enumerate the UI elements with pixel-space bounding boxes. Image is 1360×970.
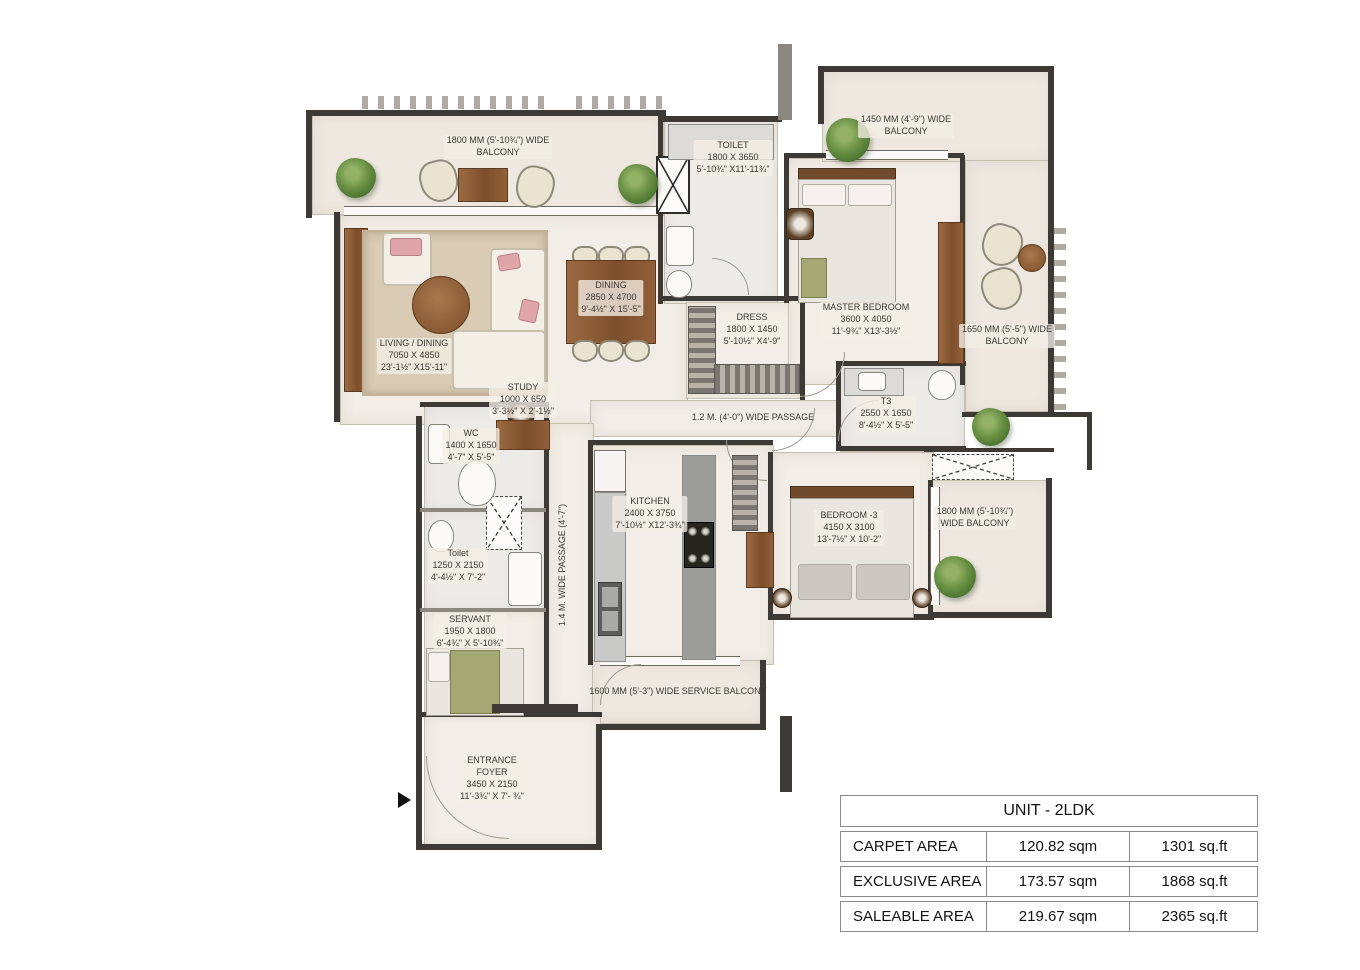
wall	[588, 440, 593, 665]
wall	[420, 608, 546, 612]
area-sqft: 2365 sq.ft	[1129, 902, 1259, 931]
wall	[818, 66, 824, 124]
window	[344, 206, 658, 216]
shoe-cabinet	[492, 704, 578, 713]
wall	[420, 508, 546, 512]
stove	[684, 522, 714, 568]
sink-fixture	[858, 372, 886, 391]
room-label-balcony-1800: 1800 MM (5'-10¾") WIDE BALCONY	[934, 506, 1016, 530]
sofa-section	[452, 330, 546, 390]
sink-fixture	[666, 226, 694, 266]
label-passage-1-2m: 1.2 M. (4'-0") WIDE PASSAGE	[689, 412, 817, 424]
room-label-study: STUDY 1000 X 650 3'-3½" X 2'-1½"	[489, 382, 557, 418]
area-sqm: 219.67 sqm	[986, 902, 1129, 931]
dress-closet	[714, 364, 800, 394]
area-sqft: 1301 sq.ft	[1129, 832, 1259, 861]
wall	[1048, 412, 1092, 417]
wall	[306, 110, 666, 116]
floorplan-canvas: 1800 MM (5'-10¾") WIDE BALCONY 1450 MM (…	[0, 0, 1360, 970]
room-label-living: LIVING / DINING 7050 X 4850 23'-1½" X15'…	[377, 338, 452, 374]
room-label-foyer: ENTRANCE FOYER 3450 X 2150 11'-3¾" X 7'-…	[457, 755, 527, 803]
wall	[1087, 412, 1092, 470]
wc-fixture	[666, 270, 692, 298]
dining-chair	[624, 340, 650, 362]
wc-fixture	[458, 460, 496, 506]
room-label-wc: WC 1400 X 1650 4'-7" X 5'-5"	[442, 428, 499, 464]
room-label-master: MASTER BEDROOM 3600 X 4050 11'-9¾" X13'-…	[820, 302, 913, 338]
room-label-toilet-left: Toilet 1250 X 2150 4'-4½" X 7'-2"	[428, 548, 488, 584]
shaft-x-icon	[656, 156, 690, 214]
room-label-balcony-right: 1650 MM (5'-5") WIDE BALCONY	[959, 324, 1055, 348]
table-row: SALEABLE AREA 219.67 sqm 2365 sq.ft	[840, 901, 1258, 932]
wall	[778, 44, 792, 120]
room-label-t3: T3 2550 X 1650 8'-4½" X 5'-5"	[856, 396, 916, 432]
balcony-side-table	[1018, 244, 1046, 272]
study-desk	[496, 420, 550, 450]
wall	[334, 212, 340, 422]
plant-icon	[972, 408, 1010, 446]
coffee-table	[412, 276, 470, 334]
dress-closet	[688, 306, 716, 394]
area-sqm: 173.57 sqm	[986, 867, 1129, 896]
balcony-table	[458, 168, 508, 202]
table-row: EXCLUSIVE AREA 173.57 sqm 1868 sq.ft	[840, 866, 1258, 897]
wall	[306, 110, 312, 218]
bed-throw	[801, 258, 827, 298]
unit-area-table: UNIT - 2LDK CARPET AREA 120.82 sqm 1301 …	[840, 795, 1258, 932]
wall	[818, 66, 1054, 72]
room-label-servant: SERVANT 1950 X 1800 6'-4¾" X 5'-10¾"	[434, 614, 507, 650]
bed-pillow	[856, 564, 910, 600]
parapet-ticks	[576, 96, 662, 109]
wall	[660, 116, 782, 122]
unit-title: UNIT - 2LDK	[840, 795, 1258, 827]
entrance-arrow-icon	[398, 792, 411, 808]
kitchen-sink	[598, 582, 622, 636]
ledge-x-dashed-icon	[932, 454, 1014, 480]
wall	[596, 724, 602, 850]
room-label-balcony-top-right: 1450 MM (4'-9") WIDE BALCONY	[858, 114, 954, 138]
wall-column	[780, 716, 792, 792]
wall	[416, 416, 422, 850]
room-label-bedroom3: BEDROOM -3 4150 X 3100 13'-7½" X 10'-2"	[814, 510, 884, 546]
shaft-x-dashed-icon	[486, 496, 522, 550]
room-label-balcony-top: 1800 MM (5'-10¾") WIDE BALCONY	[444, 135, 552, 159]
room-label-kitchen: KITCHEN 2400 X 3750 7'-10½" X12'-3¾"	[612, 496, 687, 532]
wc-fixture	[928, 370, 956, 400]
wall	[930, 612, 1052, 618]
bedside-lamp	[912, 588, 932, 608]
area-row-label: CARPET AREA	[841, 832, 986, 861]
bedside-lamp	[772, 588, 792, 608]
refrigerator	[594, 450, 626, 492]
wall	[596, 724, 764, 730]
table-row: CARPET AREA 120.82 sqm 1301 sq.ft	[840, 831, 1258, 862]
room-label-dining: DINING 2850 X 4700 9'-4½" X 15'-5"	[578, 280, 643, 316]
room-label-toilet-top: TOILET 1800 X 3650 5'-10¾" X11'-11¾"	[693, 140, 772, 176]
bedroom3-cabinet	[746, 532, 774, 588]
bed-pillow	[848, 184, 892, 206]
bed-pillow	[428, 652, 450, 682]
sink-fixture	[508, 552, 542, 606]
dining-chair	[572, 340, 598, 362]
area-sqft: 1868 sq.ft	[1129, 867, 1259, 896]
area-row-label: SALEABLE AREA	[841, 902, 986, 931]
nightstand	[786, 208, 814, 240]
wall	[924, 448, 1054, 452]
dining-chair	[598, 340, 624, 362]
label-service-balcony: 1600 MM (5'-3") WIDE SERVICE BALCONY	[586, 686, 769, 698]
label-passage-1-4m: 1.4 M. WIDE PASSAGE (4'-7")	[557, 501, 569, 629]
wall	[1046, 478, 1052, 618]
armchair-cushion	[390, 238, 422, 256]
area-row-label: EXCLUSIVE AREA	[841, 867, 986, 896]
bedroom3-closet	[732, 455, 758, 531]
bed-pillow	[798, 564, 852, 600]
railing-ticks	[1054, 220, 1066, 410]
wall	[416, 844, 602, 850]
parapet-ticks	[362, 96, 554, 109]
bed-pillow	[802, 184, 846, 206]
room-label-dress: DRESS 1800 X 1450 5'-10½" X4'-9"	[721, 312, 784, 348]
area-sqm: 120.82 sqm	[986, 832, 1129, 861]
